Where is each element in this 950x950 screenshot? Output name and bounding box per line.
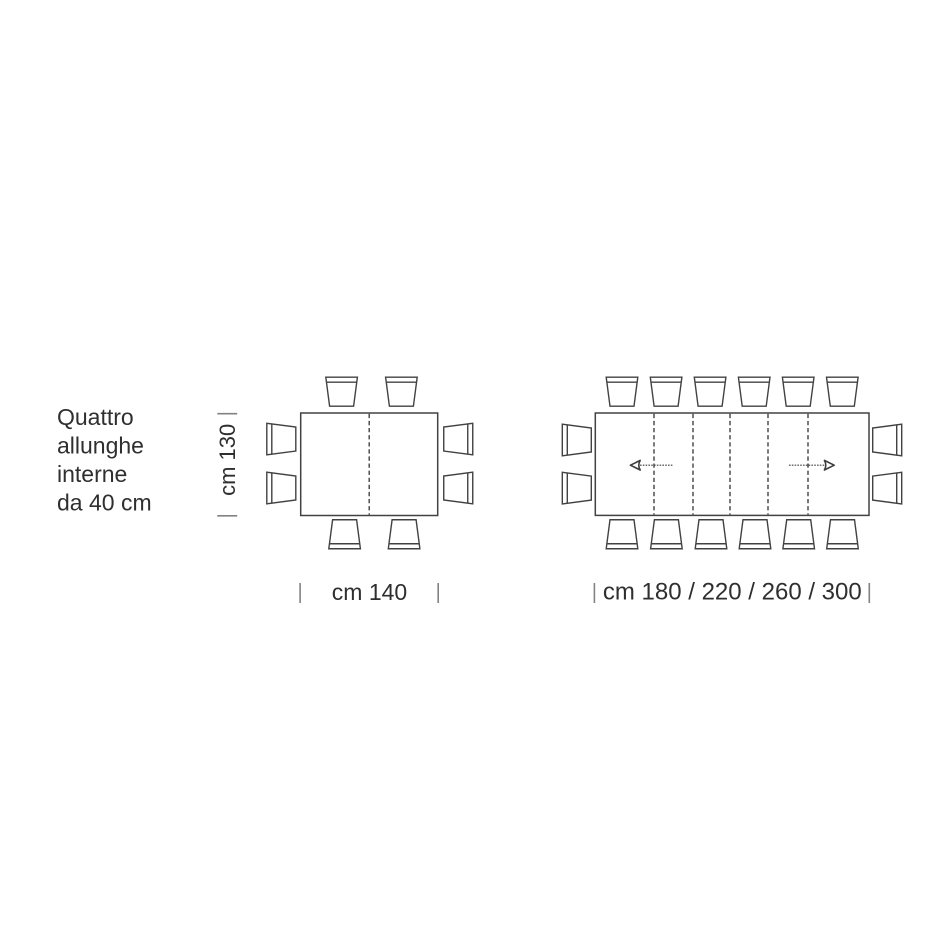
svg-text:Quattro: Quattro: [57, 404, 134, 430]
svg-text:interne: interne: [57, 461, 127, 487]
svg-text:da 40 cm: da 40 cm: [57, 489, 152, 515]
svg-text:cm 180 / 220 / 260 / 300: cm 180 / 220 / 260 / 300: [603, 579, 862, 606]
svg-text:allunghe: allunghe: [57, 432, 144, 458]
svg-text:cm 130: cm 130: [215, 424, 240, 496]
svg-text:cm 140: cm 140: [332, 579, 407, 605]
